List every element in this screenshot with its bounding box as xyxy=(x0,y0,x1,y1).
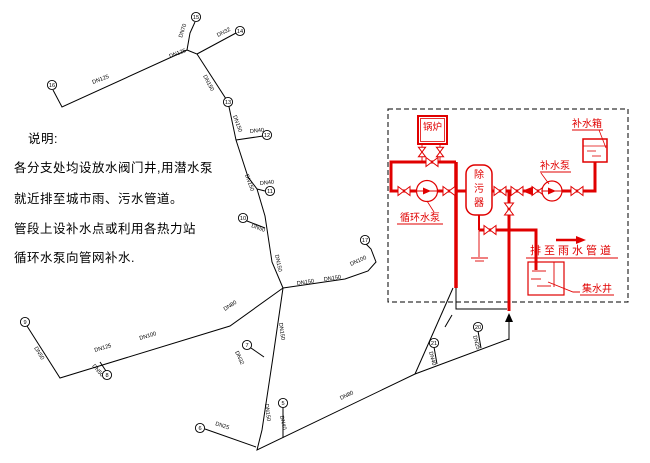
valve-well-node: 13 xyxy=(223,97,232,106)
node-number: 15 xyxy=(193,15,199,21)
valve-well-node: 21 xyxy=(429,338,438,347)
node-number: 7 xyxy=(245,343,248,349)
pipe-size-label: DN40 xyxy=(260,180,275,187)
valve-well-node: 12 xyxy=(262,130,271,139)
node-number: 11 xyxy=(267,189,273,195)
pipe-segment xyxy=(257,189,265,191)
pipe-size-label: DN50 xyxy=(250,223,266,234)
pipe-size-label: DN40 xyxy=(278,415,287,430)
pipe-size-label: DN150 xyxy=(201,74,214,92)
node-number: 12 xyxy=(264,133,270,139)
valve-well-node: 9 xyxy=(20,317,29,326)
strainer-label-char: 器 xyxy=(474,197,484,209)
valve-well-node: 7 xyxy=(242,340,251,349)
valve-icon xyxy=(571,187,583,196)
valve-icon xyxy=(436,147,443,157)
makeup-tank-label: 补水箱 xyxy=(572,117,602,130)
valve-well-node: 16 xyxy=(47,80,56,89)
notes-line: 管段上设补水点或利用各热力站 xyxy=(14,221,196,236)
circulation-pump-label: 循环水泵 xyxy=(400,211,440,224)
circulation-pump-icon xyxy=(417,181,438,202)
heat-station-schematic: 锅炉 除 污 器 xyxy=(388,109,628,340)
circulation-pump-leader xyxy=(427,201,434,212)
makeup-pump-leader xyxy=(541,173,549,184)
pipe-size-label: DN100 xyxy=(139,331,157,342)
valve-well-node: 14 xyxy=(235,26,244,35)
sump-label: 集水井 xyxy=(582,282,612,295)
valve-well-node: 10 xyxy=(238,213,247,222)
pipe-size-label: DN150 xyxy=(296,279,314,287)
pipe-segment xyxy=(257,288,509,450)
boiler-symbol: 锅炉 xyxy=(418,116,447,144)
pipe-segment xyxy=(456,288,507,309)
strainer-label-char: 除 xyxy=(474,168,484,181)
strainer-symbol: 除 污 器 xyxy=(466,165,492,215)
pipe-segment xyxy=(236,136,263,140)
valve-icon xyxy=(426,158,438,167)
cad-drawing-canvas: DN125DN125DN70DN32DN150DN150DN40DN150DN4… xyxy=(0,0,650,463)
pipe-segment xyxy=(445,315,452,327)
notes-block: 说明: 各分支处均设放水阀门井,用潜水泵 就近排至城市雨、污水管道。 管段上设补… xyxy=(14,131,213,265)
valve-icon xyxy=(484,226,496,235)
pipe-size-label: DN80 xyxy=(339,390,354,402)
pipe-size-label: DN32 xyxy=(233,350,244,366)
valve-well-node: 20 xyxy=(473,322,482,331)
valve-icon xyxy=(398,187,410,196)
pipe-segment xyxy=(205,429,256,447)
valve-well-node: 15 xyxy=(191,12,200,21)
pipe-segment xyxy=(251,348,264,357)
node-number: 5 xyxy=(281,401,284,407)
valve-well-node: 8 xyxy=(102,370,111,379)
valve-well-node: 11 xyxy=(265,186,274,195)
notes-line: 就近排至城市雨、污水管道。 xyxy=(14,191,183,206)
node-number: 13 xyxy=(225,100,231,106)
valve-icon xyxy=(505,203,514,215)
pipe-size-label: DN150 xyxy=(323,275,341,283)
node-number: 6 xyxy=(198,426,201,432)
network-inflow-arrow-icon xyxy=(505,313,513,340)
node-number: 17 xyxy=(362,238,368,244)
makeup-tank-symbol xyxy=(583,130,607,162)
pipe-size-label: DN70 xyxy=(178,23,188,38)
pipe-size-label: DN150 xyxy=(273,254,282,272)
valve-well-node: 6 xyxy=(195,423,204,432)
node-number: 21 xyxy=(431,341,437,347)
check-valve-icon xyxy=(522,187,533,196)
strainer-label-char: 污 xyxy=(474,183,484,195)
makeup-pump-icon xyxy=(542,181,562,201)
makeup-pump-label: 补水泵 xyxy=(540,159,570,172)
valve-well-node: 5 xyxy=(278,398,287,407)
pipe-size-label: DN100 xyxy=(349,255,367,268)
node-number: 14 xyxy=(237,29,243,35)
pipe-size-label: DN150 xyxy=(243,174,255,192)
pipe-size-label: DN80 xyxy=(223,300,238,313)
sump-symbol xyxy=(528,262,580,295)
valve-icon xyxy=(418,147,425,157)
discharge-arrow-icon xyxy=(556,236,586,244)
valve-icon xyxy=(511,187,523,196)
node-number: 9 xyxy=(23,320,26,326)
pipe-segment xyxy=(187,22,195,50)
notes-line: 各分支处均设放水阀门井,用潜水泵 xyxy=(14,160,213,175)
pipe-size-label: DN150 xyxy=(277,322,285,340)
node-number: 8 xyxy=(105,373,108,379)
pipe-size-label: DN125 xyxy=(94,343,112,354)
pipe-size-label: DN50 xyxy=(32,346,45,361)
notes-line: 循环水泵向管网补水. xyxy=(14,250,135,265)
valve-icon xyxy=(494,187,506,196)
node-number: 10 xyxy=(240,216,246,222)
discharge-label: 排至雨水管道 xyxy=(530,243,614,257)
piping-diagram-svg: DN125DN125DN70DN32DN150DN150DN40DN150DN4… xyxy=(0,0,650,463)
pipe-size-label: DN125 xyxy=(169,48,187,60)
boiler-label: 锅炉 xyxy=(423,121,442,133)
pipe-size-label: DN25 xyxy=(214,421,229,431)
node-number: 16 xyxy=(49,83,55,89)
pipe-size-label: DN125 xyxy=(92,74,110,86)
valve-well-node: 17 xyxy=(360,235,369,244)
notes-heading: 说明: xyxy=(28,131,58,146)
pipe-segment xyxy=(53,50,187,107)
node-number: 20 xyxy=(475,325,481,331)
pipe-size-label: DN150 xyxy=(263,404,271,422)
valve-icon xyxy=(443,187,455,196)
